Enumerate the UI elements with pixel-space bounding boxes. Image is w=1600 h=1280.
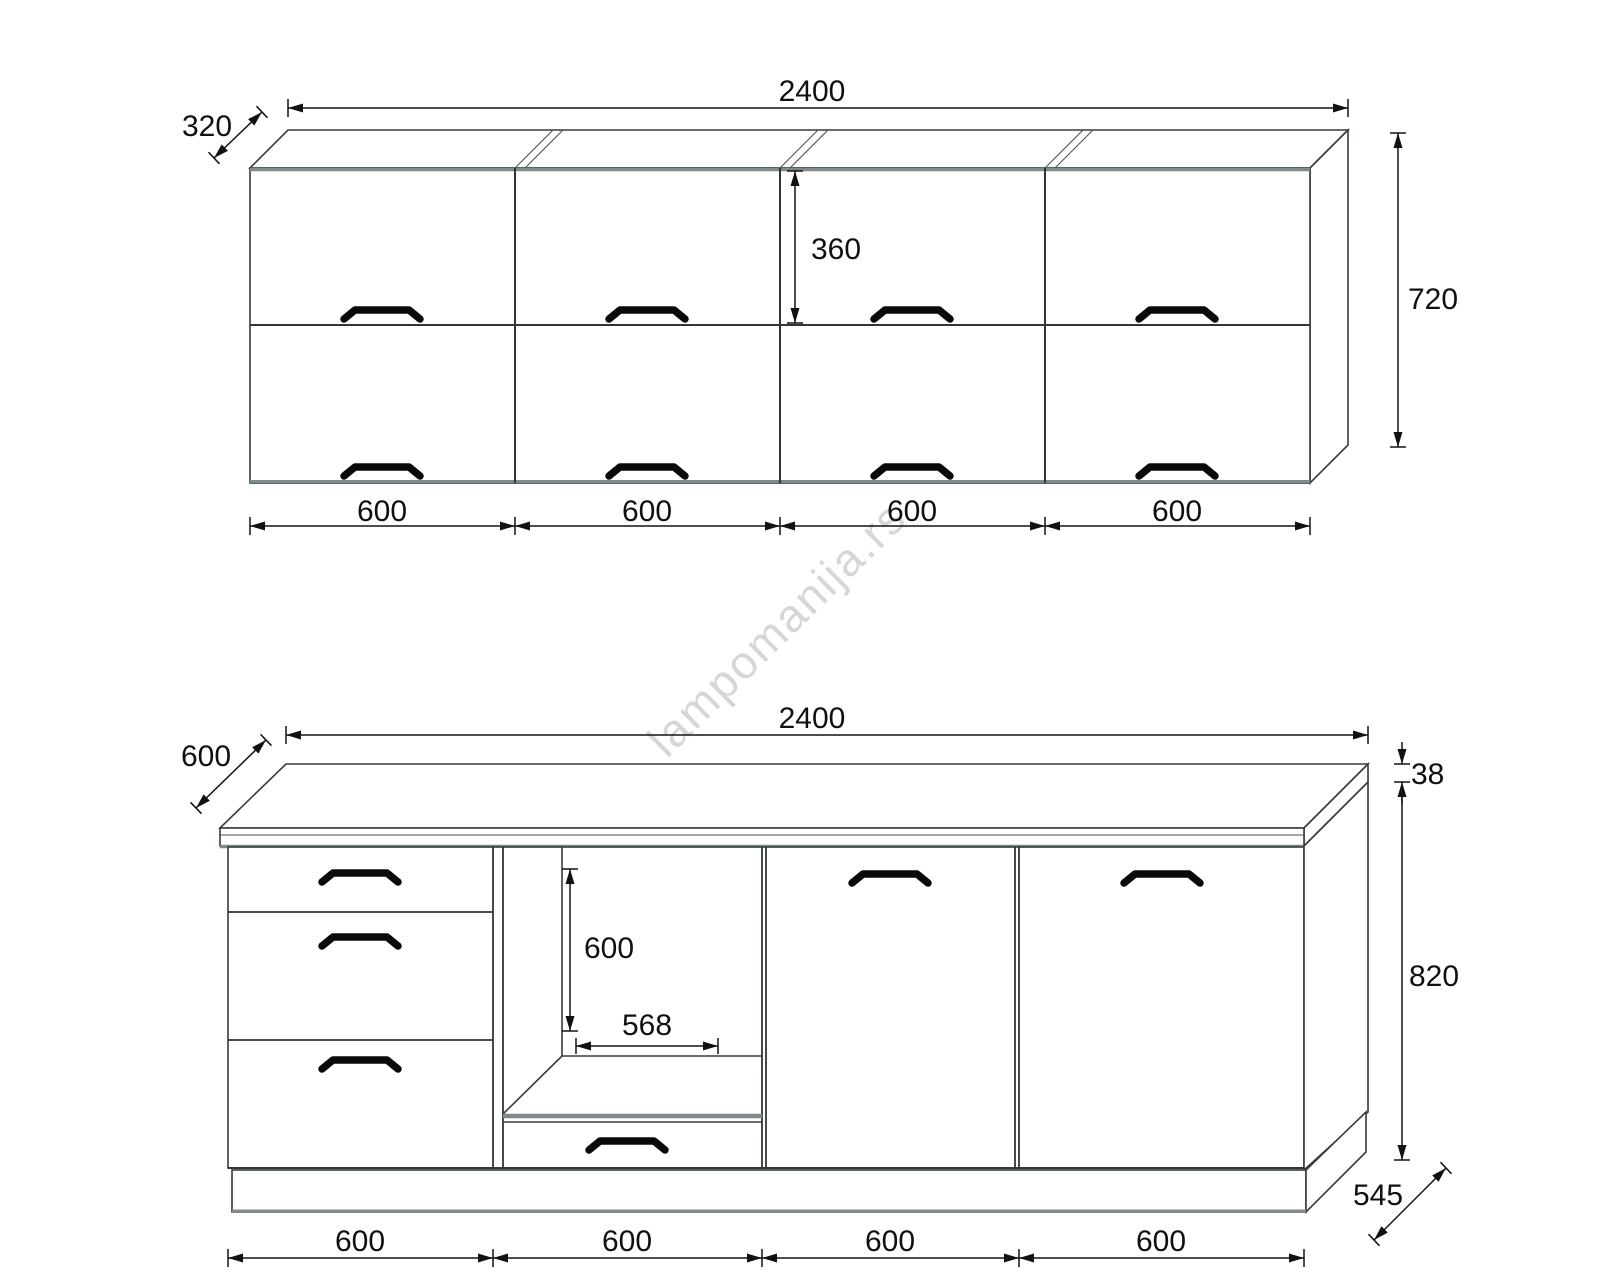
dim-label-wall-section-1: 600 [357, 495, 407, 528]
dim-label-oven-opening-width: 568 [622, 1009, 672, 1042]
worktop-front-face [220, 828, 1304, 846]
dim-base-sections: 600 600 600 600 [228, 1225, 1304, 1267]
dim-label-base-section-1: 600 [335, 1225, 385, 1258]
base-cabinet-side-face [1304, 782, 1368, 1170]
dim-label-base-section-4: 600 [1136, 1225, 1186, 1258]
dim-label-wall-depth: 320 [182, 110, 232, 143]
plinth-front-face [232, 1170, 1306, 1212]
base-cabinet-drawing [220, 764, 1368, 1212]
dim-wall-sections: 600 600 600 600 [250, 495, 1310, 535]
dim-label-worktop-thickness: 38 [1411, 758, 1444, 791]
dim-wall-width: 2400 [288, 75, 1348, 117]
cabinet-dimension-drawing: lampomanija.rs [0, 0, 1600, 1280]
dim-label-base-section-2: 600 [602, 1225, 652, 1258]
wall-cabinet-side-face [1310, 130, 1348, 483]
dim-label-base-section-3: 600 [865, 1225, 915, 1258]
dim-label-oven-opening-height: 600 [584, 932, 634, 965]
dim-label-base-bottom-depth: 545 [1353, 1179, 1403, 1212]
dim-base-height: 820 [1394, 786, 1459, 1160]
dim-label-base-depth: 600 [181, 740, 231, 773]
dim-label-wall-door-height: 360 [811, 233, 861, 266]
dim-label-wall-width: 2400 [779, 75, 846, 108]
dim-wall-height: 720 [1390, 133, 1458, 447]
dim-base-bottom-depth: 545 [1353, 1162, 1452, 1246]
dim-base-width: 2400 [286, 702, 1368, 744]
dim-label-wall-height: 720 [1408, 283, 1458, 316]
worktop-top-face [220, 764, 1368, 828]
dim-wall-depth: 320 [182, 106, 268, 164]
dim-label-wall-section-4: 600 [1152, 495, 1202, 528]
wall-cabinet-drawing [250, 130, 1348, 483]
dim-label-wall-section-2: 600 [622, 495, 672, 528]
dim-label-wall-section-3: 600 [887, 495, 937, 528]
watermark-text: lampomanija.rs [637, 491, 916, 766]
dim-label-base-width: 2400 [779, 702, 846, 735]
dim-label-base-height: 820 [1409, 960, 1459, 993]
